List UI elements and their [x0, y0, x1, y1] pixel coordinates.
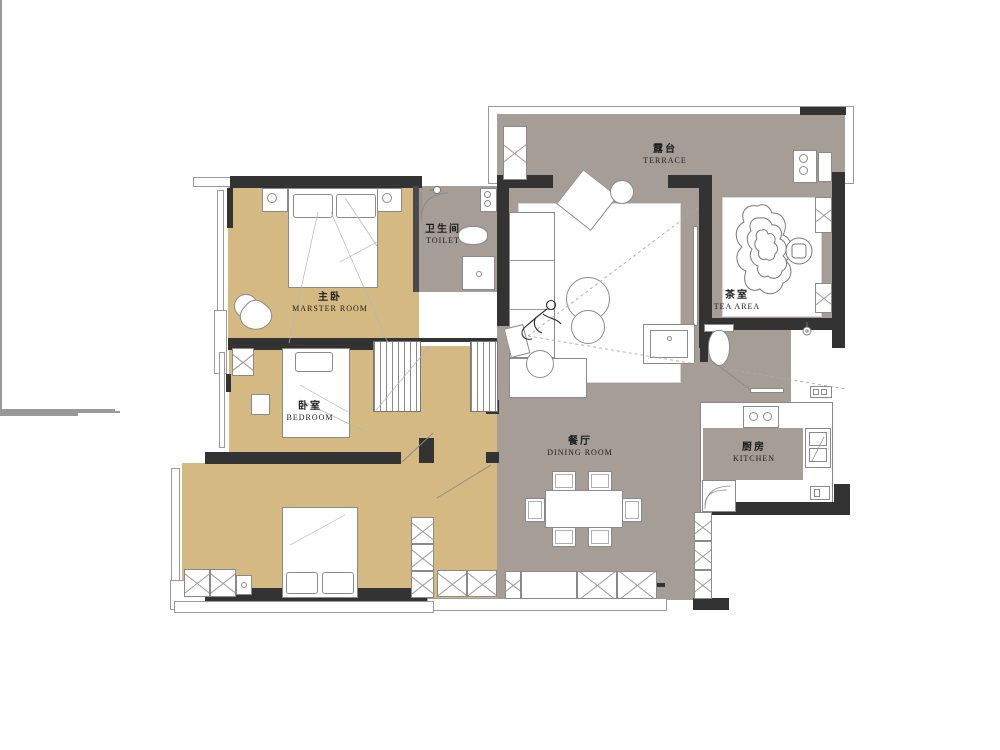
- room-label-master: 主卧 MARSTER ROOM: [278, 291, 382, 314]
- stairs: [373, 341, 421, 412]
- dining-cabinet: [617, 571, 657, 599]
- window-bedroom2-left: [219, 352, 225, 448]
- lamp: [382, 193, 392, 203]
- wall: [486, 452, 499, 463]
- coffee-table: [571, 310, 605, 344]
- stairs: [470, 341, 498, 412]
- corner-unit: [702, 480, 736, 512]
- dining-table: [545, 490, 623, 528]
- room-name-zh: 茶室: [691, 289, 783, 302]
- knob: [799, 166, 808, 175]
- wardrobe-cabinet: [411, 544, 434, 571]
- pillow: [295, 352, 333, 372]
- room-name-en: DINING ROOM: [532, 448, 628, 458]
- room-name-en: BEDROOM: [262, 413, 358, 423]
- room-name-en: KITCHEN: [706, 454, 802, 464]
- dining-chair: [588, 471, 612, 491]
- faucet: [667, 336, 672, 341]
- wardrobe-cabinet: [467, 570, 497, 597]
- knob: [484, 200, 491, 207]
- wall: [497, 175, 509, 326]
- toilet-fixture: [708, 330, 730, 366]
- dining-cabinet: [577, 571, 617, 599]
- pillow: [286, 572, 318, 594]
- sink-bowl: [809, 448, 827, 462]
- room-name-zh: 餐厅: [532, 435, 628, 448]
- tall-cabinet: [694, 541, 712, 570]
- dining-cabinet: [505, 571, 521, 599]
- room-label-dining: 餐厅 DINING ROOM: [532, 435, 628, 458]
- stool: [526, 350, 554, 378]
- room-label-terrace: 露台 TERRACE: [617, 143, 713, 166]
- dining-chair: [552, 471, 576, 491]
- room-name-zh: 主卧: [278, 291, 382, 304]
- room-name-zh: 厨房: [706, 441, 802, 454]
- switch: [814, 489, 820, 497]
- window-sill-top: [193, 177, 231, 187]
- room-name-en: TEA AREA: [691, 302, 783, 312]
- window-sill-dining: [427, 598, 667, 611]
- terrace-counter: [818, 152, 832, 182]
- room-name-en: MARSTER ROOM: [278, 304, 382, 314]
- wardrobe-cabinet: [411, 571, 434, 598]
- wall: [800, 107, 846, 115]
- wall: [834, 484, 850, 514]
- wardrobe-cabinet: [437, 570, 467, 597]
- pillow: [322, 572, 354, 594]
- tall-cabinet: [694, 512, 712, 541]
- pouf: [610, 180, 634, 204]
- knob: [484, 191, 491, 198]
- room-label-kitchen: 厨房 KITCHEN: [706, 441, 802, 464]
- terrace-cabinet: [503, 126, 527, 180]
- room-name-zh: 露台: [617, 143, 713, 156]
- room-label-tea: 茶室 TEA AREA: [691, 289, 783, 312]
- dining-chair: [525, 498, 545, 522]
- wash-basin: [650, 330, 688, 358]
- window-master-left: [217, 190, 224, 312]
- dining-cabinet: [521, 571, 577, 599]
- dining-chair: [552, 527, 576, 547]
- room-label-bedroom: 卧室 BEDROOM: [262, 400, 358, 423]
- wall: [693, 598, 729, 610]
- wall: [832, 172, 845, 348]
- lamp: [267, 193, 277, 203]
- door-leaf: [750, 388, 784, 393]
- floor-edge: [0, 0, 2, 274]
- window-bedroom3-left: [171, 468, 180, 590]
- room-name-zh: 卧室: [262, 400, 358, 413]
- burner: [763, 412, 772, 421]
- switch: [813, 389, 819, 395]
- wardrobe-cabinet: [411, 517, 434, 544]
- sofa-cushion: [510, 261, 554, 309]
- wall: [419, 438, 434, 463]
- floor-plan: 主卧 MARSTER ROOM 卫生间 TOILET 卧室 BEDROOM 露台…: [0, 0, 1000, 750]
- room-name-zh: 卫生间: [401, 223, 485, 236]
- tall-cabinet: [694, 570, 712, 599]
- switch-box: [810, 486, 830, 500]
- sofa-cushion: [510, 213, 554, 261]
- pillow: [293, 194, 333, 218]
- room-name-en: TOILET: [401, 236, 485, 246]
- dining-chair: [622, 498, 642, 522]
- wall: [226, 374, 231, 392]
- wall: [230, 176, 422, 188]
- pillow: [336, 194, 376, 218]
- knob: [799, 154, 808, 163]
- burner: [749, 412, 758, 421]
- tea-cabinet: [815, 283, 832, 313]
- dining-chair: [588, 527, 612, 547]
- room-name-en: TERRACE: [617, 156, 713, 166]
- wardrobe-cabinet: [210, 569, 236, 597]
- wall: [227, 188, 233, 228]
- window-sill-bedroom3: [174, 601, 434, 613]
- wall: [205, 452, 401, 464]
- cabinet-handle: [657, 583, 665, 587]
- knob: [241, 582, 247, 588]
- wardrobe-cabinet: [184, 569, 210, 597]
- tea-cabinet: [815, 197, 832, 233]
- wardrobe-cabinet: [232, 348, 254, 376]
- floor-edge: [0, 274, 2, 409]
- room-label-toilet: 卫生间 TOILET: [401, 223, 485, 246]
- switch: [821, 389, 827, 395]
- floor-drain: [476, 271, 482, 277]
- sink-bowl: [809, 432, 827, 446]
- window-line: [0, 413, 78, 416]
